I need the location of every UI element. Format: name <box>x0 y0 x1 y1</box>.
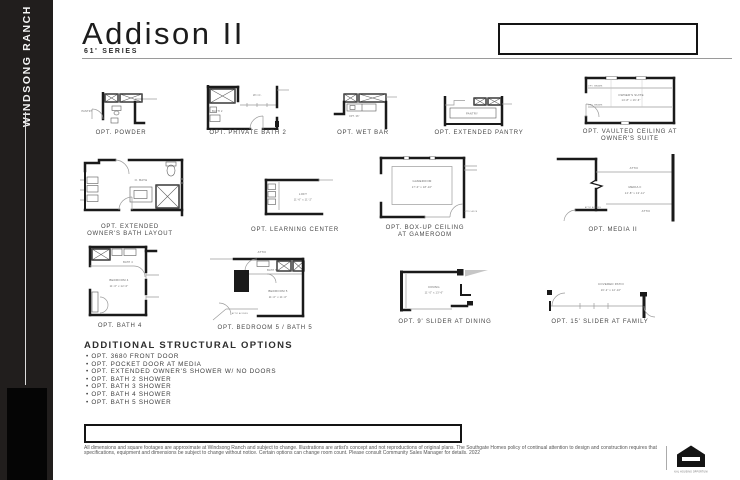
wet-bar-plan-drawing: OPT. 36" <box>327 92 397 129</box>
attic-label: ATTIC <box>642 209 651 213</box>
room-dims: 16'-2" x 12'-10" <box>601 288 622 292</box>
room-label: MEDIA II <box>628 185 641 189</box>
bedroom-5-plan-drawing: ATTIC BATH 5 BEDROOM 5 11'-0" x 11'-0" A… <box>210 246 314 321</box>
equal-housing-label: EQUAL HOUSING OPPORTUNITY <box>674 471 708 474</box>
sidebar: WINDSONG RANCH <box>0 0 53 480</box>
gameroom-plan-drawing: GAMEROOM 17'-0" x 18'-10" ATTIC ACCESS <box>371 154 477 223</box>
floorplan-opt-15-slider-family: COVERED PATIO 16'-2" x 12'-10" <box>537 278 663 318</box>
option-item: OPT. BATH 5 SHOWER <box>86 399 276 407</box>
room-dims: 11'-6" x 11'-2" <box>294 198 313 202</box>
empty-info-box-bottom <box>84 424 462 443</box>
learning-center-plan-drawing: LOFT 11'-6" x 11'-2" <box>253 177 333 219</box>
room-label: BATH 2 <box>212 109 223 113</box>
bath-4-plan-drawing: BATH 4 BEDROOM 4 11'-0" x 12'-0" <box>83 243 159 318</box>
option-item: OPT. 3680 FRONT DOOR <box>86 353 276 361</box>
plan-caption-line1: OPT. BOX-UP CEILING <box>335 225 515 232</box>
plan-caption-line1: OPT. EXTENDED <box>40 224 220 231</box>
extended-pantry-plan-drawing: PANTRY <box>438 96 512 128</box>
room-label: DINING <box>428 285 440 289</box>
room-label: PANTRY <box>82 110 93 113</box>
header-rule <box>82 58 732 59</box>
room-dims: 11'-0" x 13'-6" <box>425 291 444 295</box>
option-item: OPT. BATH 2 SHOWER <box>86 376 276 384</box>
room-dims: 17'-0" x 18'-10" <box>412 185 433 189</box>
attic-access-label: ATTIC ACCESS <box>585 206 601 209</box>
plan-caption-line2: OWNER'S BATH LAYOUT <box>40 231 220 238</box>
floorplan-opt-bath-4: BATH 4 BEDROOM 4 11'-0" x 12'-0" <box>83 243 159 318</box>
plan-caption: OPT. BOX-UP CEILING AT GAMEROOM <box>335 225 515 239</box>
option-item: OPT. EXTENDED OWNER'S SHOWER W/ NO DOORS <box>86 368 276 376</box>
room-label: BATH 5 <box>267 269 277 272</box>
room-dims: 11'-0" x 11'-0" <box>269 295 288 299</box>
dining-slider-plan-drawing: DINING 11'-0" x 13'-6" <box>396 266 496 316</box>
owners-bath-plan-drawing: O. BATH <box>80 157 198 221</box>
sidebar-divider-line <box>25 112 26 385</box>
plan-caption-line2: OWNER'S SUITE <box>540 136 720 143</box>
floorplan-opt-wet-bar: OPT. 36" <box>327 92 397 129</box>
floorplan-opt-media-2: ATTIC MEDIA II 14'-8" x 13'-11" ATTIC AT… <box>556 154 676 223</box>
floorplan-opt-bedroom-5: ATTIC BATH 5 BEDROOM 5 11'-0" x 11'-0" A… <box>210 246 314 321</box>
media-2-plan-drawing: ATTIC MEDIA II 14'-8" x 13'-11" ATTIC AT… <box>556 154 676 223</box>
plan-caption-line1: OPT. VAULTED CEILING AT <box>540 129 720 136</box>
room-label: W.I.C. <box>253 93 262 97</box>
floorplan-opt-extended-owners-bath: O. BATH <box>80 157 198 221</box>
option-item: OPT. BATH 3 SHOWER <box>86 383 276 391</box>
floorplan-opt-boxup-gameroom: GAMEROOM 17'-0" x 18'-10" ATTIC ACCESS <box>371 154 477 223</box>
option-item: OPT. POCKET DOOR AT MEDIA <box>86 361 276 369</box>
floorplan-opt-extended-pantry: PANTRY <box>438 96 512 128</box>
vaulted-ceiling-plan-drawing: OPT. BEAMS OPT. BEAMS OWNER'S SUITE 14'-… <box>583 75 677 128</box>
room-dims: 14'-8" x 13'-11" <box>625 191 645 195</box>
room-label: BEDROOM 5 <box>268 289 287 293</box>
room-label: PANTRY <box>466 112 478 116</box>
plan-caption: OPT. VAULTED CEILING AT OWNER'S SUITE <box>540 129 720 143</box>
empty-info-box-top <box>498 23 698 55</box>
floorplan-opt-powder: PANTRY <box>81 92 157 127</box>
attic-label: ATTIC <box>630 166 639 170</box>
private-bath-2-plan-drawing: W.I.C. BATH 2 <box>203 85 289 130</box>
equal-housing-icon: EQUAL HOUSING OPPORTUNITY <box>674 444 708 474</box>
room-label: BATH 4 <box>123 261 133 264</box>
room-label: LOFT <box>299 192 307 196</box>
beams-label: OPT. BEAMS <box>588 85 603 88</box>
floorplan-opt-9-slider-dining: DINING 11'-0" x 13'-6" <box>396 266 496 316</box>
powder-plan-drawing: PANTRY <box>81 92 157 127</box>
brochure-page: WINDSONG RANCH Addison II 61' SERIES PAN… <box>0 0 740 480</box>
additional-options-heading: ADDITIONAL STRUCTURAL OPTIONS <box>84 340 293 351</box>
plan-caption: OPT. 9' SLIDER AT DINING <box>355 319 535 326</box>
room-label: BEDROOM 4 <box>109 278 128 282</box>
attic-label: ATTIC <box>258 250 267 254</box>
plan-caption: OPT. BEDROOM 5 / BATH 5 <box>175 325 355 332</box>
brand-text: WINDSONG RANCH <box>21 5 33 127</box>
page-title: Addison II <box>82 16 245 52</box>
plan-caption: OPT. EXTENDED OWNER'S BATH LAYOUT <box>40 224 220 238</box>
floorplan-opt-learning-center: LOFT 11'-6" x 11'-2" <box>253 177 333 219</box>
equal-housing-logo-drawing: EQUAL HOUSING OPPORTUNITY <box>674 444 708 474</box>
room-dims: 11'-0" x 12'-0" <box>110 284 129 288</box>
footer-divider <box>666 446 667 470</box>
family-slider-plan-drawing: COVERED PATIO 16'-2" x 12'-10" <box>537 278 663 318</box>
brand-vertical: WINDSONG RANCH <box>0 10 53 122</box>
option-item: OPT. BATH 4 SHOWER <box>86 391 276 399</box>
attic-access-label: ATTIC ACCESS <box>465 210 478 213</box>
plan-caption-line2: AT GAMEROOM <box>335 232 515 239</box>
room-label: OWNER'S SUITE <box>618 93 643 97</box>
beams-label: OPT. BEAMS <box>588 104 603 107</box>
additional-options-list: OPT. 3680 FRONT DOOR OPT. POCKET DOOR AT… <box>86 353 276 406</box>
room-label: OPT. 36" <box>349 116 360 118</box>
plan-caption: OPT. 15' SLIDER AT FAMILY <box>510 319 690 326</box>
series-label: 61' SERIES <box>84 48 138 55</box>
room-label: GAMEROOM <box>412 179 431 183</box>
attic-access-label: ATTIC ACCESS <box>232 312 248 315</box>
plan-caption: OPT. MEDIA II <box>523 227 703 234</box>
room-label: O. BATH <box>135 178 148 182</box>
floorplan-opt-vaulted-ceiling: OPT. BEAMS OPT. BEAMS OWNER'S SUITE 14'-… <box>583 75 677 128</box>
room-label: COVERED PATIO <box>598 282 624 286</box>
disclaimer-text: All dimensions and square footages are a… <box>84 446 661 456</box>
floorplan-opt-private-bath-2: W.I.C. BATH 2 <box>203 85 289 130</box>
room-dims: 14'-8" x 16'-6" <box>622 98 641 102</box>
sidebar-dark-block <box>7 388 47 480</box>
